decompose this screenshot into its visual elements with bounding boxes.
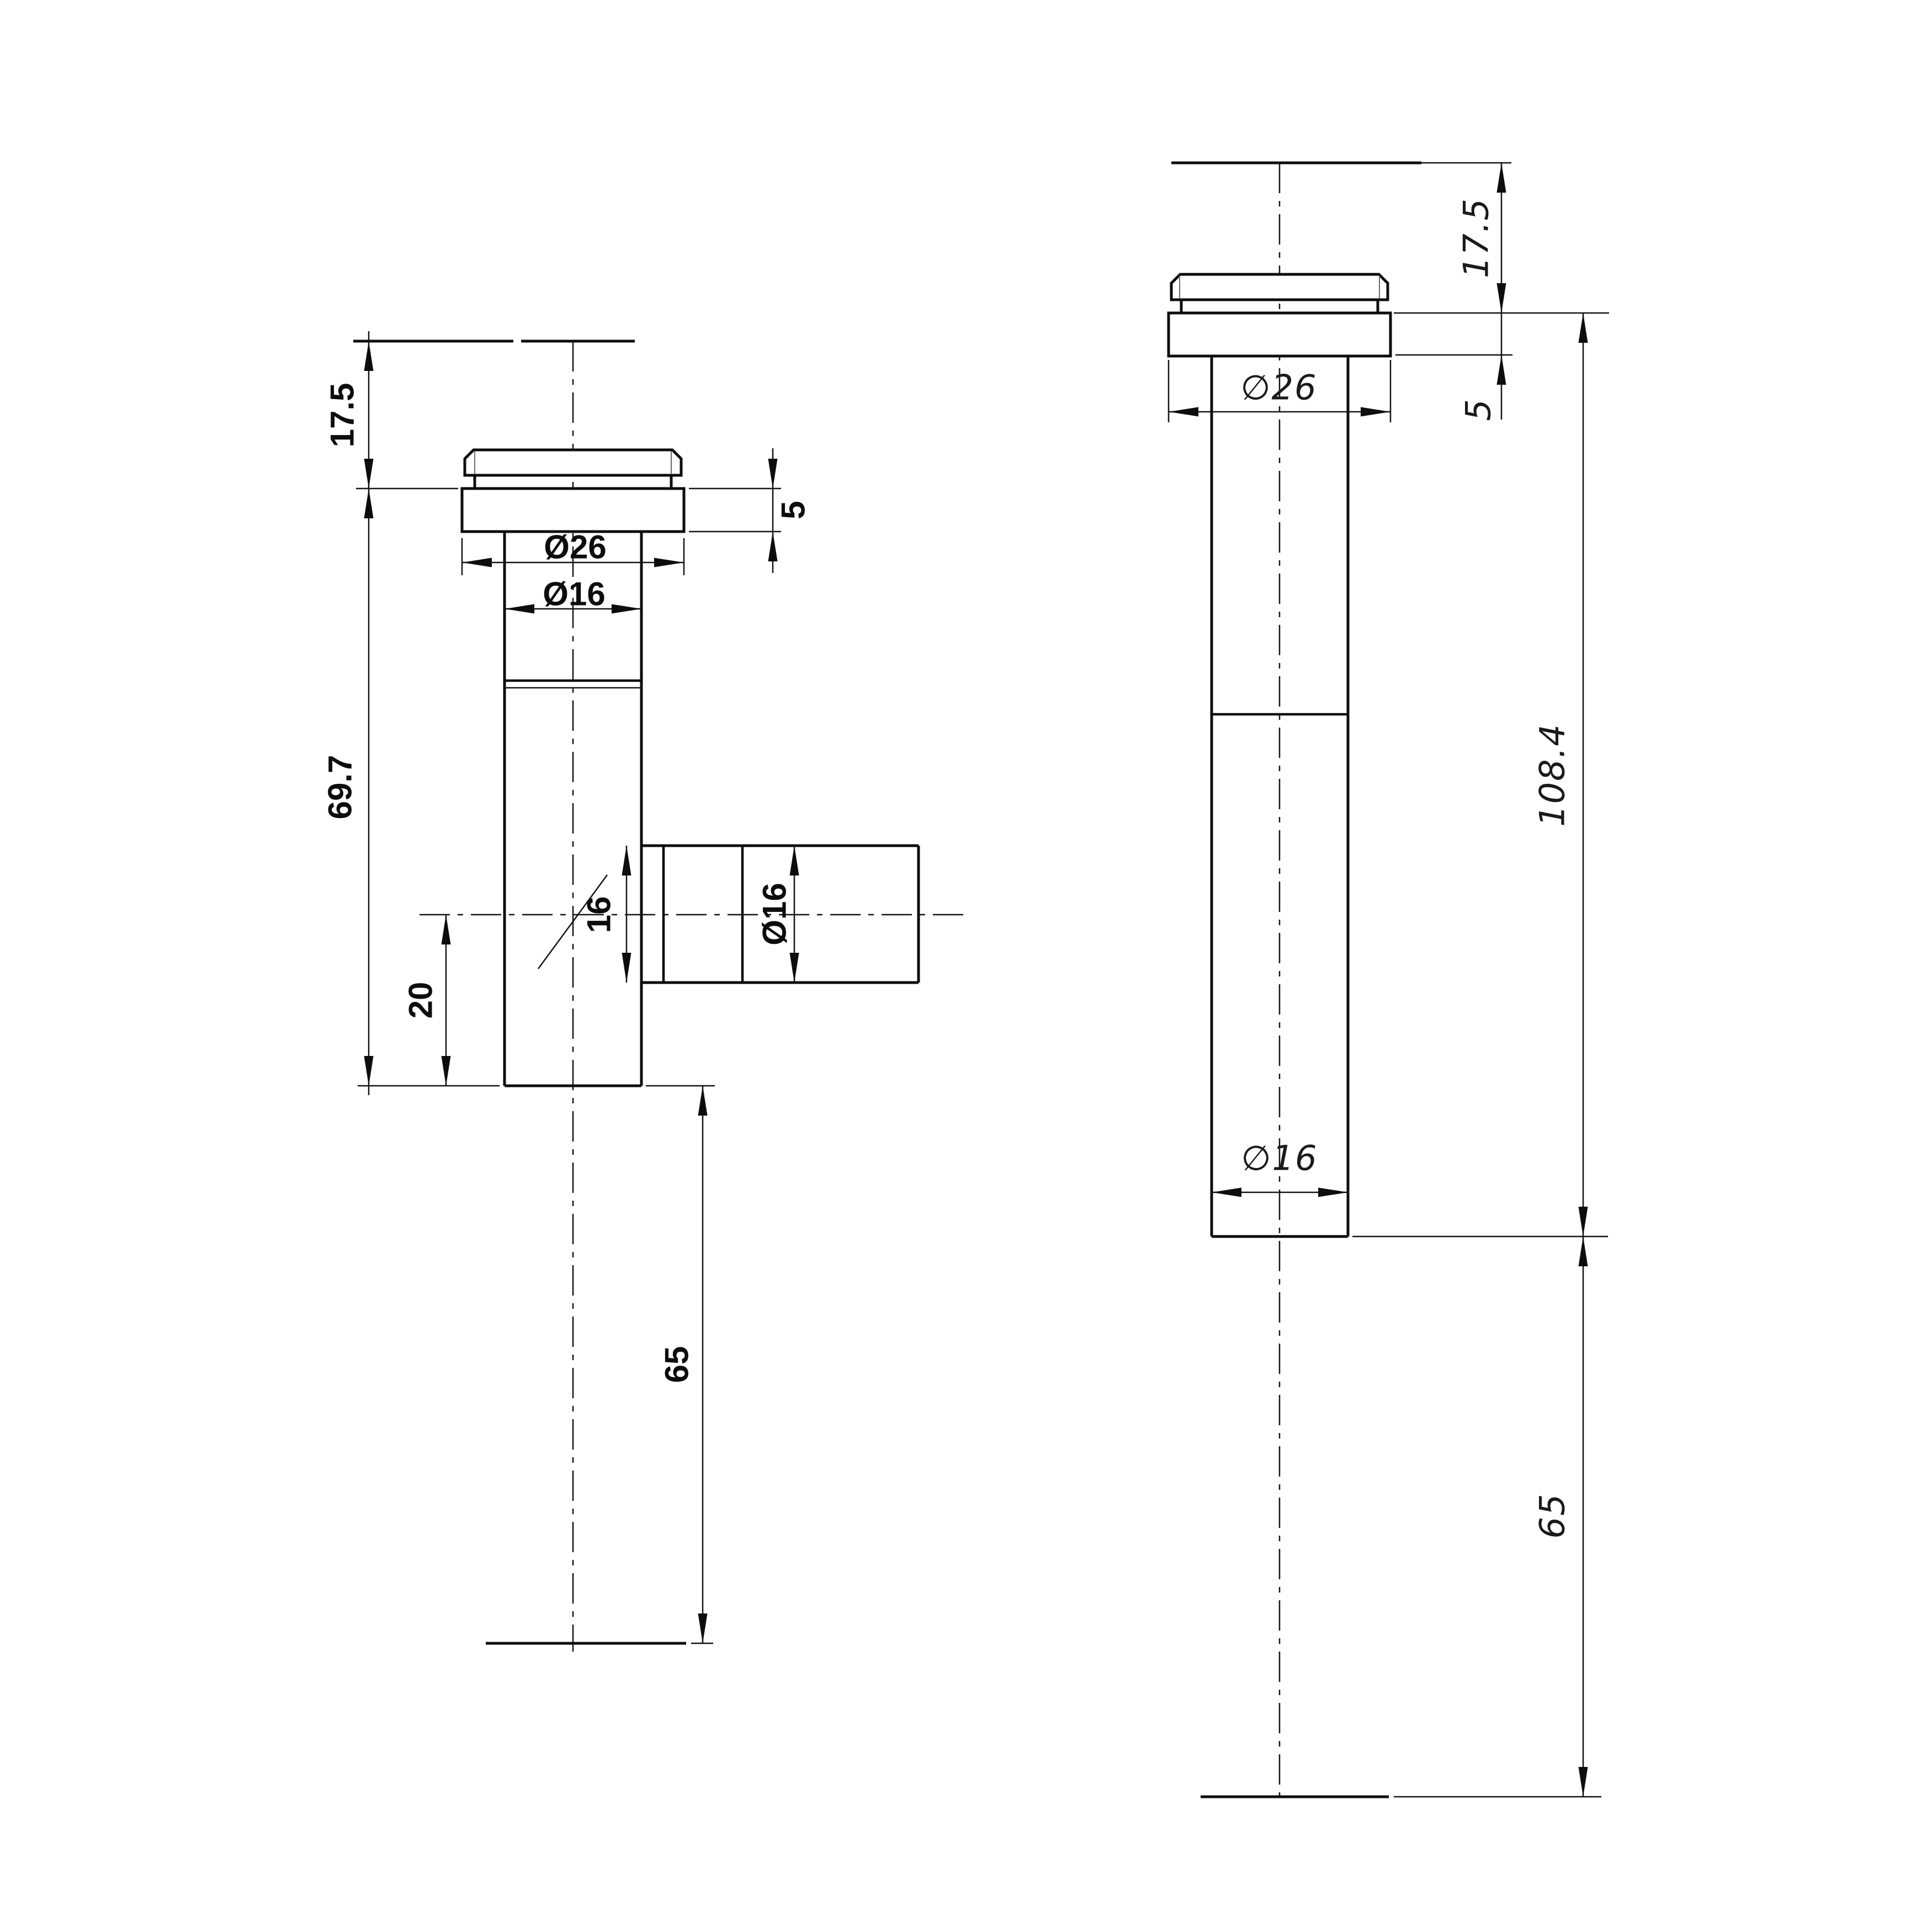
front-view: 17.5 69.7 20 5 Ø26 Ø16 16 Ø16 65 [322, 331, 964, 1652]
dim-label-front-flange-thickness: 5 [775, 501, 812, 519]
technical-drawing: 17.5 69.7 20 5 Ø26 Ø16 16 Ø16 65 [0, 0, 1932, 1932]
dim-label-front-branch-bore: 16 [581, 896, 618, 933]
side-view: ∅26 17.5 5 ∅16 108.4 65 [1169, 163, 1609, 1804]
dim-label-side-flange-diameter: ∅26 [1241, 368, 1318, 408]
dim-label-front-flange-diameter: Ø26 [544, 529, 606, 566]
dim-label-front-pipe-diameter: Ø16 [543, 576, 605, 613]
dim-label-side-flange-thickness: 5 [1458, 398, 1499, 421]
dim-label-front-body-length: 69.7 [322, 755, 359, 820]
drawing-canvas: 17.5 69.7 20 5 Ø26 Ø16 16 Ø16 65 [0, 0, 1932, 1932]
dim-label-front-branch-diameter: Ø16 [756, 883, 793, 945]
side-cap [1171, 274, 1388, 300]
dim-label-side-tail-length: 65 [1532, 1493, 1573, 1539]
front-dim-5-lines [689, 448, 781, 573]
dim-label-side-overall-length: 108.4 [1532, 723, 1573, 827]
front-cap [465, 450, 681, 475]
dim-label-side-pipe-diameter: ∅16 [1241, 1138, 1318, 1179]
dim-label-front-top-clearance: 17.5 [324, 383, 361, 448]
dim-label-front-tail-length: 65 [659, 1346, 696, 1383]
side-flange [1169, 313, 1390, 356]
dim-label-front-branch-offset: 20 [402, 982, 439, 1019]
dim-label-side-top-clearance: 17.5 [1456, 198, 1496, 278]
front-flange [462, 489, 684, 532]
